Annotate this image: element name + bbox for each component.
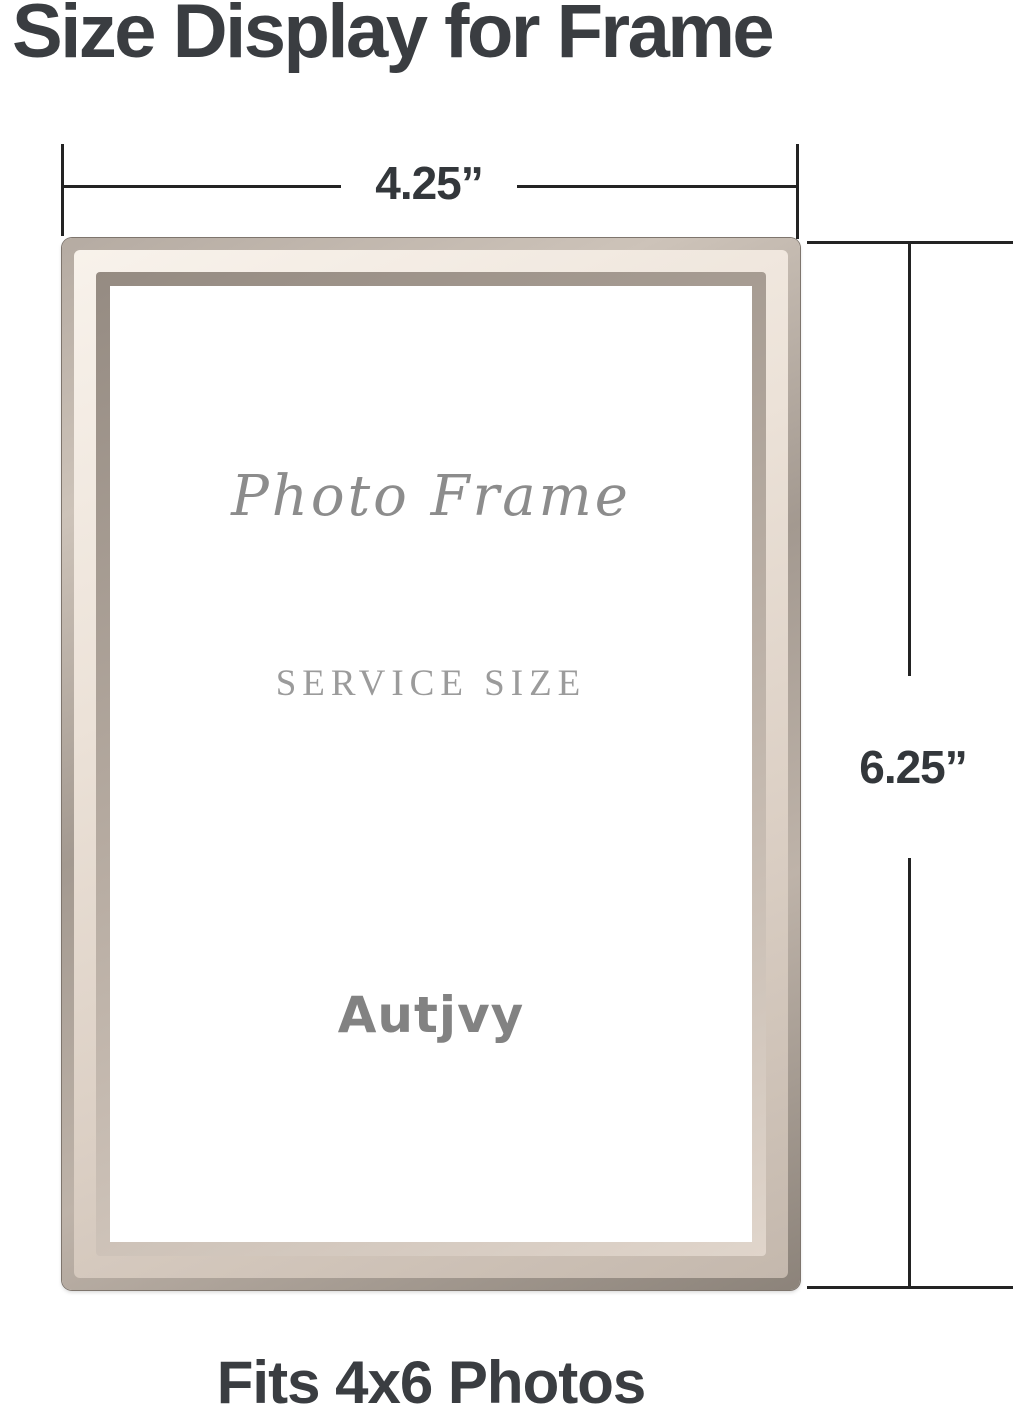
width-dim-tick-right (796, 144, 799, 239)
photo-frame: Photo Frame SERVICE SIZE Autjvy (62, 238, 800, 1290)
width-dim-tick-left (61, 144, 64, 236)
height-dim-line-bottom (908, 858, 911, 1289)
height-dim-line-top (908, 241, 911, 676)
insert-brand-text: Autjvy (110, 986, 752, 1044)
frame-size-diagram: Size Display for Frame 4.25” 6.25” Photo… (0, 0, 1013, 1417)
insert-service-size-text: SERVICE SIZE (110, 662, 752, 705)
height-dim-label: 6.25” (823, 740, 1003, 794)
frame-moulding-inner-lip: Photo Frame SERVICE SIZE Autjvy (96, 272, 766, 1256)
frame-insert: Photo Frame SERVICE SIZE Autjvy (110, 286, 752, 1242)
frame-moulding-highlight: Photo Frame SERVICE SIZE Autjvy (74, 250, 788, 1278)
width-dim-line-right (517, 185, 799, 188)
insert-script-text: Photo Frame (110, 464, 752, 529)
width-dim-line-left (61, 185, 341, 188)
fits-caption: Fits 4x6 Photos (62, 1348, 800, 1417)
page-title: Size Display for Frame (12, 0, 772, 74)
width-dim-label: 4.25” (341, 156, 517, 210)
